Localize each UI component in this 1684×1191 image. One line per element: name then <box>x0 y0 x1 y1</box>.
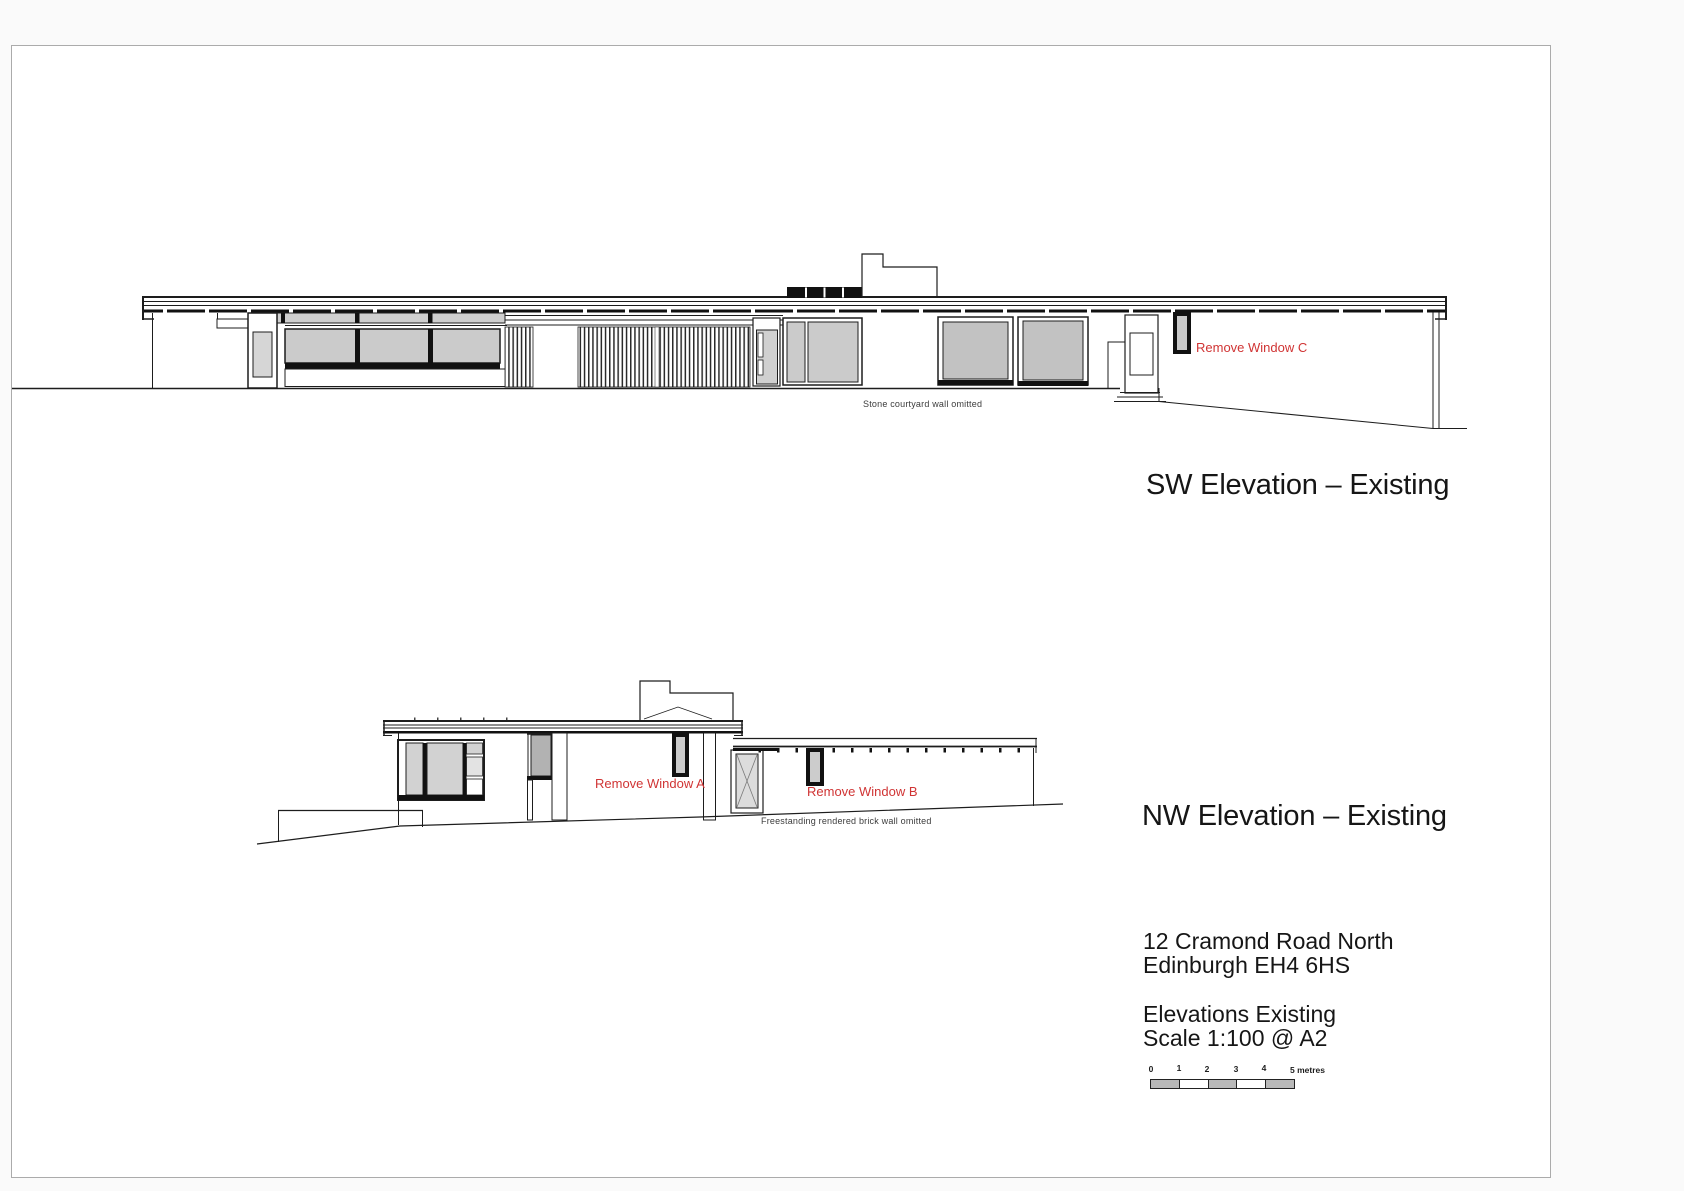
scale-bar-segment <box>1265 1080 1294 1088</box>
nw-note-brick-wall: Freestanding rendered brick wall omitted <box>761 817 932 826</box>
scale-tick-1: 1 <box>1177 1064 1182 1073</box>
scale-end-label: 5 metres <box>1290 1066 1325 1075</box>
address-line-1: 12 Cramond Road North <box>1143 930 1394 954</box>
scale-tick-0: 0 <box>1149 1065 1154 1074</box>
drawing-scale: Scale 1:100 @ A2 <box>1143 1027 1336 1051</box>
sw-note-courtyard-wall: Stone courtyard wall omitted <box>863 400 982 409</box>
scale-tick-2: 2 <box>1205 1065 1210 1074</box>
title-block-address: 12 Cramond Road North Edinburgh EH4 6HS <box>1143 930 1394 977</box>
sw-annotation-remove-window-c: Remove Window C <box>1196 341 1307 354</box>
scale-bar <box>1150 1079 1295 1089</box>
nw-annotation-remove-window-b: Remove Window B <box>807 785 918 798</box>
title-block-drawing-info: Elevations Existing Scale 1:100 @ A2 <box>1143 1003 1336 1050</box>
nw-annotation-remove-window-a: Remove Window A <box>595 777 705 790</box>
nw-elevation-title: NW Elevation – Existing <box>1142 802 1447 831</box>
scale-bar-segment <box>1151 1080 1179 1088</box>
sw-elevation-title: SW Elevation – Existing <box>1146 471 1449 500</box>
scale-bar-segment <box>1208 1080 1237 1088</box>
address-line-2: Edinburgh EH4 6HS <box>1143 954 1394 978</box>
scale-tick-3: 3 <box>1234 1065 1239 1074</box>
scale-tick-4: 4 <box>1262 1064 1267 1073</box>
scale-bar-segment <box>1179 1080 1208 1088</box>
drawing-title: Elevations Existing <box>1143 1003 1336 1027</box>
drawing-sheet: { "page": { "background_color": "#fafafa… <box>0 0 1684 1191</box>
scale-bar-segment <box>1236 1080 1265 1088</box>
